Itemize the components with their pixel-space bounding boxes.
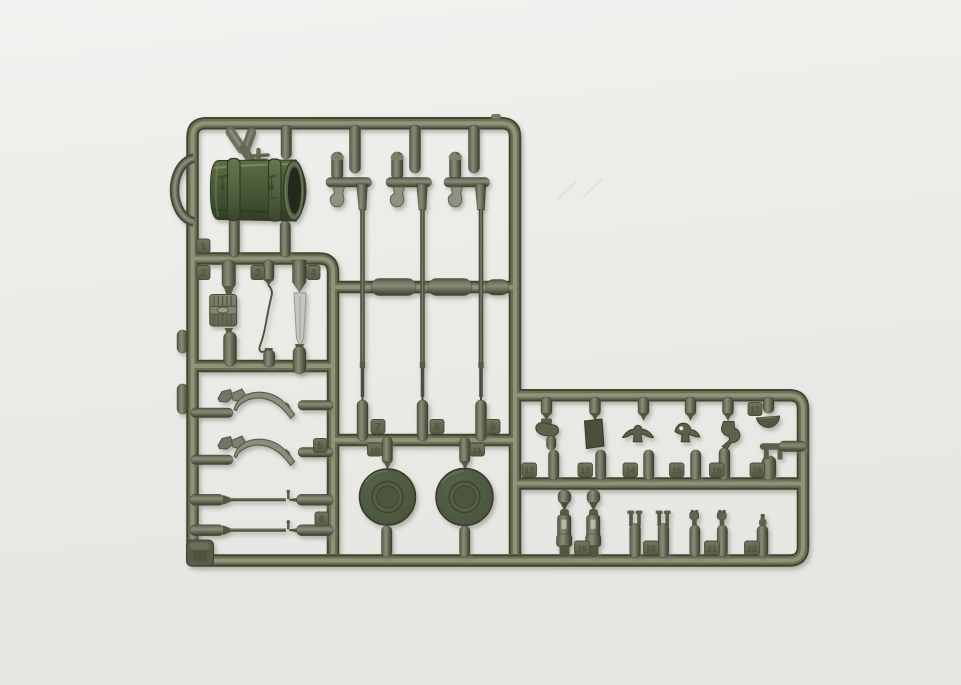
svg-text:21: 21 <box>707 544 717 554</box>
svg-text:6: 6 <box>319 515 325 526</box>
svg-text:19: 19 <box>577 544 587 554</box>
svg-text:2: 2 <box>201 268 207 279</box>
svg-text:18: 18 <box>753 466 763 476</box>
svg-text:8: 8 <box>434 422 440 433</box>
svg-text:5: 5 <box>318 441 324 452</box>
svg-text:1: 1 <box>201 242 207 253</box>
svg-text:7: 7 <box>375 422 381 433</box>
svg-text:16: 16 <box>712 466 722 476</box>
svg-text:22: 22 <box>747 544 757 554</box>
svg-text:12: 12 <box>525 466 535 476</box>
svg-text:10: 10 <box>370 446 380 456</box>
svg-text:14: 14 <box>626 466 636 476</box>
svg-text:3: 3 <box>255 268 261 279</box>
svg-text:20: 20 <box>646 544 656 554</box>
svg-text:9: 9 <box>490 422 496 433</box>
svg-text:13: 13 <box>581 466 591 476</box>
svg-text:17: 17 <box>750 405 760 415</box>
svg-text:11: 11 <box>473 446 482 456</box>
svg-text:15: 15 <box>672 466 682 476</box>
svg-text:4: 4 <box>311 268 317 279</box>
